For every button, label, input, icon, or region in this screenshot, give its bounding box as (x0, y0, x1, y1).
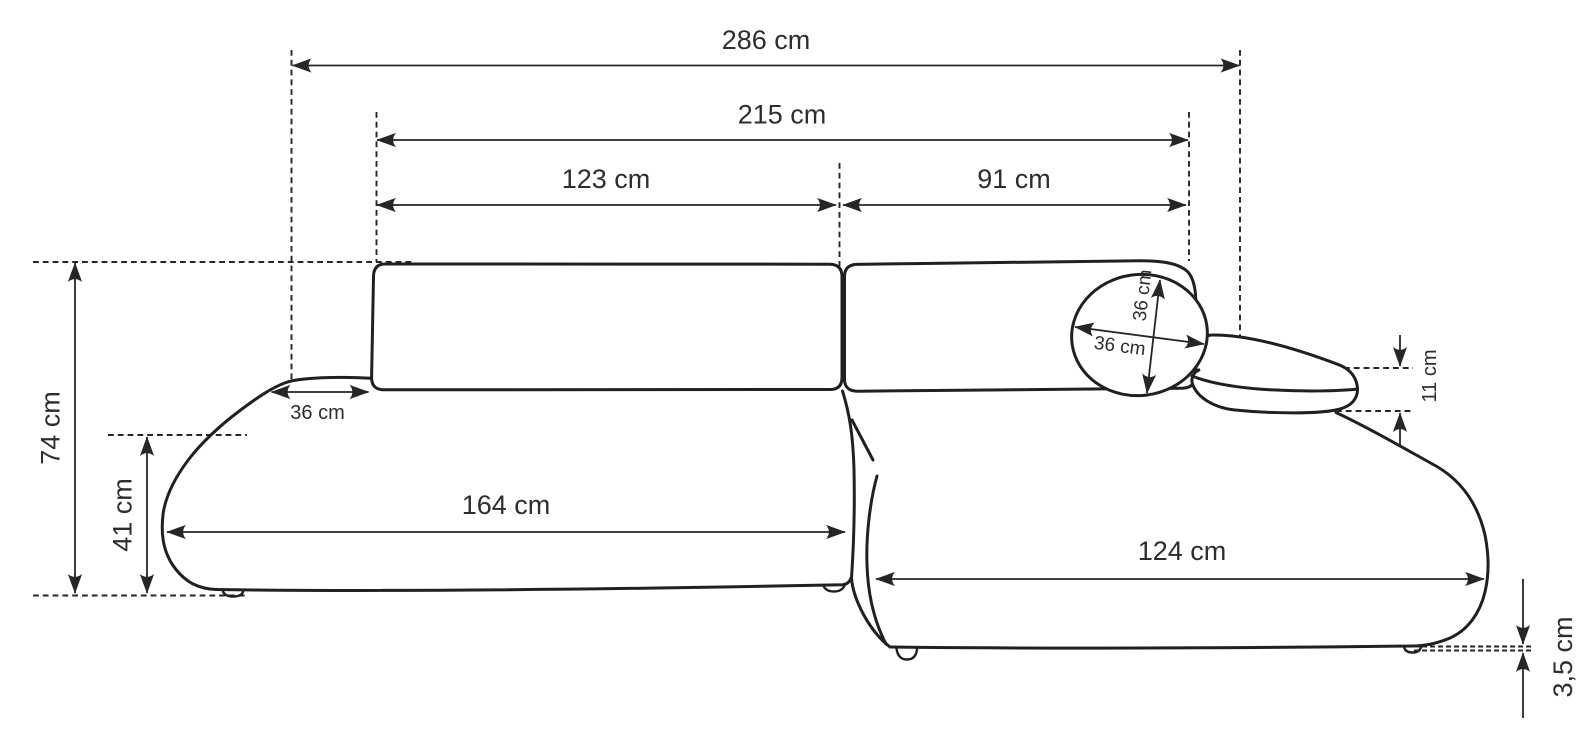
svg-text:3,5 cm: 3,5 cm (1548, 616, 1578, 697)
svg-text:74 cm: 74 cm (36, 391, 66, 465)
svg-text:164 cm: 164 cm (462, 490, 551, 520)
svg-text:123 cm: 123 cm (562, 164, 651, 194)
svg-text:11 cm: 11 cm (1419, 350, 1441, 403)
svg-text:286 cm: 286 cm (722, 25, 811, 55)
svg-text:41 cm: 41 cm (108, 478, 138, 552)
svg-text:36 cm: 36 cm (290, 402, 344, 424)
svg-text:124 cm: 124 cm (1138, 536, 1227, 566)
svg-text:215 cm: 215 cm (738, 100, 827, 130)
svg-text:91 cm: 91 cm (977, 164, 1051, 194)
